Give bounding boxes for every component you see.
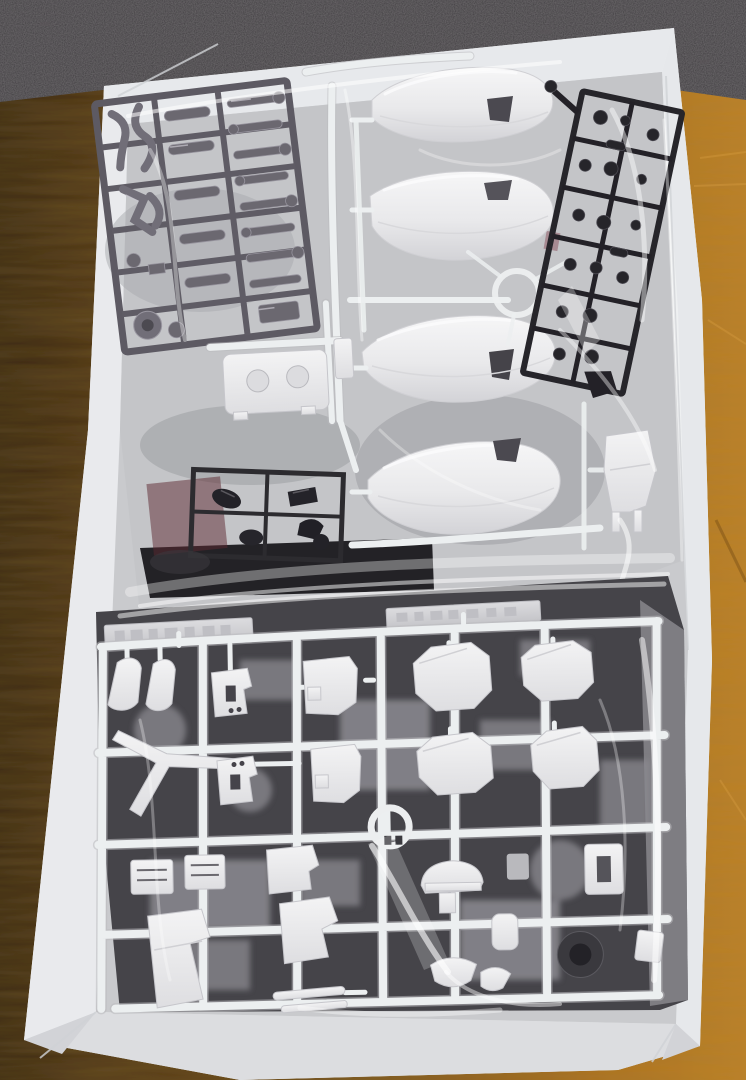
panel-pad [315,775,328,788]
emboss-tick [430,611,442,621]
white-connector-part [222,349,329,414]
part-foot [301,406,315,415]
photo-stage [0,0,746,1080]
cylinder-part [492,914,519,950]
emboss-tick [184,627,195,638]
emboss-tick [202,626,215,637]
hull-vent [484,180,512,200]
dark-spill [150,550,210,574]
gunmetal-part [148,263,165,275]
emboss-tick [486,608,496,618]
armor-panel [303,656,358,715]
armor-chunk [266,845,319,894]
carpet-fleck [540,30,552,34]
white-small-part [334,338,354,379]
armor-panel [311,744,362,803]
emboss-tick [220,625,231,636]
ghost-part [507,853,529,879]
scene-svg [0,0,746,1080]
emboss-tick [448,610,458,620]
carpet-fleck [700,60,709,64]
thruster-block [131,860,174,895]
part-slot [226,685,236,701]
part-foot [634,510,642,532]
lower-bag-group [94,576,688,1016]
ring-tab [395,836,402,845]
emboss-tick [414,612,423,621]
helmet-brim [425,882,481,891]
emboss-tick [114,630,125,641]
maroon-parts-hint [146,476,227,555]
emboss-tick [466,609,478,619]
upper-bag-group [94,56,684,614]
hull-vent [487,96,513,122]
emboss-tick [148,629,158,639]
ghost-part [530,840,590,900]
octagon-armor-4 [530,726,599,789]
carpet-fleck [40,22,50,26]
part-foot [233,411,247,420]
emboss-tick [164,628,178,639]
white-leg-part [604,430,656,512]
thruster-block [185,855,226,890]
emboss-tick [130,629,143,640]
part-slot [597,856,611,882]
panel-pad [308,687,321,700]
emboss-tick [504,607,516,617]
small-box-part [635,930,664,963]
helmet-chin [439,893,455,913]
emboss-tick [396,612,407,622]
embossed-circle [286,365,309,388]
embossed-circle [246,369,269,392]
part-slot [230,774,240,789]
